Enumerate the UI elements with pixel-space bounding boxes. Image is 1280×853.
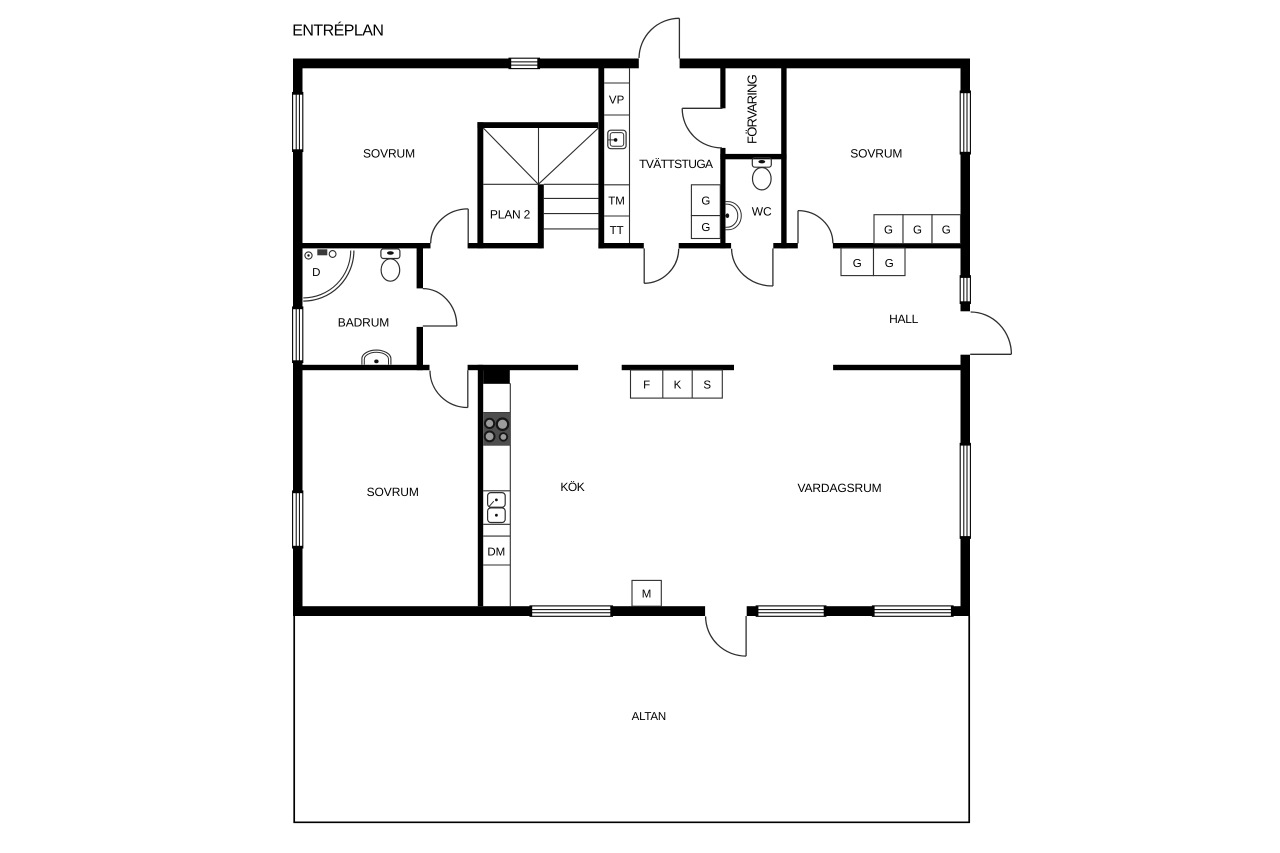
svg-text:TVÄTTSTUGA: TVÄTTSTUGA xyxy=(639,157,713,171)
svg-text:PLAN 2: PLAN 2 xyxy=(490,208,531,222)
svg-text:TM: TM xyxy=(608,196,625,208)
svg-text:TT: TT xyxy=(610,225,624,237)
svg-text:G: G xyxy=(885,258,894,270)
svg-text:WC: WC xyxy=(752,205,772,219)
svg-text:SOVRUM: SOVRUM xyxy=(367,485,419,499)
svg-text:FÖRVARING: FÖRVARING xyxy=(745,74,760,144)
svg-text:S: S xyxy=(703,379,711,391)
svg-text:HALL: HALL xyxy=(889,312,919,326)
svg-text:ALTAN: ALTAN xyxy=(632,711,666,723)
svg-text:K: K xyxy=(674,379,682,391)
svg-text:DM: DM xyxy=(487,547,505,559)
svg-text:SOVRUM: SOVRUM xyxy=(363,147,415,161)
svg-text:SOVRUM: SOVRUM xyxy=(850,147,902,161)
svg-text:BADRUM: BADRUM xyxy=(338,316,390,330)
svg-text:G: G xyxy=(913,224,922,236)
svg-text:G: G xyxy=(884,224,893,236)
svg-text:VP: VP xyxy=(609,94,625,106)
svg-text:KÖK: KÖK xyxy=(560,480,584,494)
svg-text:ENTRÉPLAN: ENTRÉPLAN xyxy=(292,22,383,40)
svg-text:D: D xyxy=(312,267,320,279)
svg-text:G: G xyxy=(942,224,951,236)
svg-text:VARDAGSRUM: VARDAGSRUM xyxy=(797,481,881,495)
svg-text:F: F xyxy=(643,379,650,391)
svg-text:M: M xyxy=(642,588,652,600)
svg-text:G: G xyxy=(701,195,710,207)
svg-text:G: G xyxy=(701,222,710,234)
svg-text:G: G xyxy=(853,258,862,270)
